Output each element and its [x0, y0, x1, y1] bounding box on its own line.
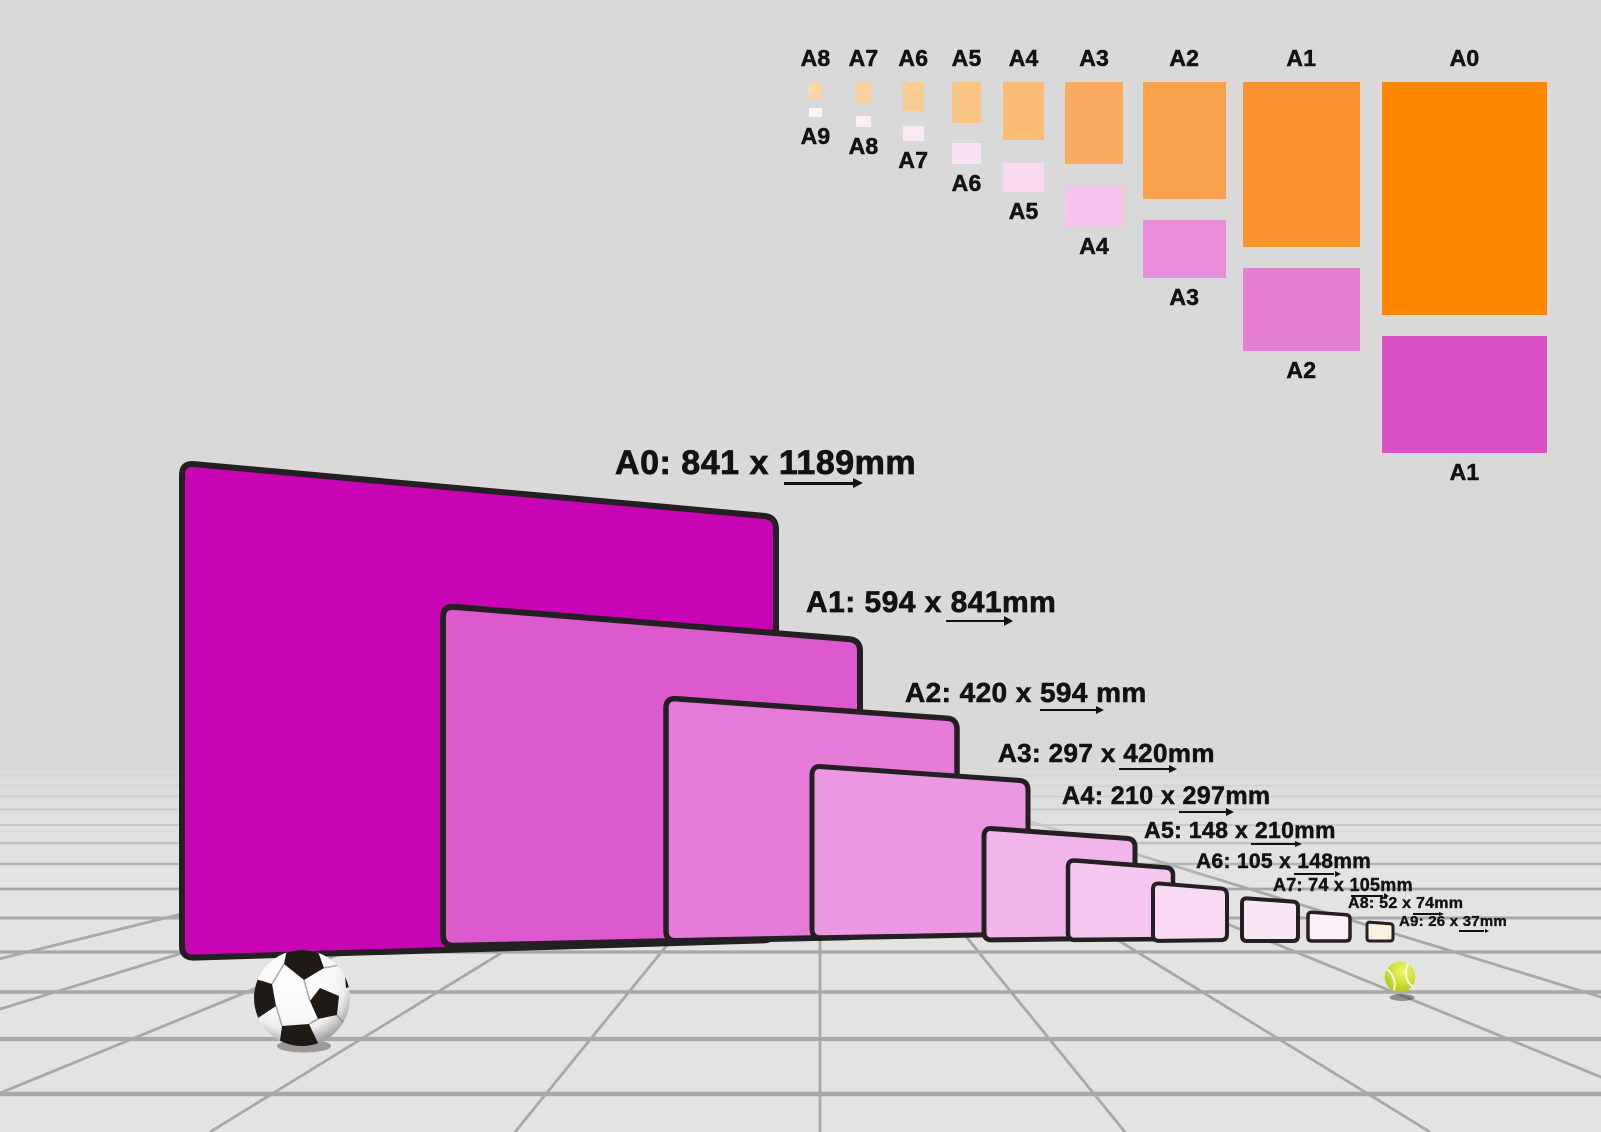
landscape-sheet-a9 — [809, 108, 822, 117]
size-label-a5: A5: 148 x 210mm — [1144, 819, 1336, 842]
portrait-sheet-a5 — [952, 82, 981, 123]
portrait-sheet-a3 — [1065, 82, 1123, 164]
right-arrow-icon — [1459, 930, 1484, 932]
portrait-sheet-a6 — [903, 82, 924, 111]
landscape-size-label: A3 — [1169, 286, 1199, 309]
portrait-size-label: A5 — [952, 47, 982, 70]
paper-sizes-infographic: A0: 841 x 1189mmA1: 594 x 841mmA2: 420 x… — [0, 0, 1601, 1132]
landscape-size-label: A1 — [1450, 461, 1480, 484]
portrait-sheet-a1 — [1243, 82, 1360, 247]
landscape-size-label: A6 — [952, 172, 982, 195]
portrait-sheet-a2 — [1143, 82, 1226, 199]
soccer-ball — [246, 944, 362, 1056]
size-label-text: A7: 74 x 105mm — [1273, 875, 1413, 895]
portrait-size-label: A7 — [849, 47, 879, 70]
size-label-a0: A0: 841 x 1189mm — [615, 446, 916, 480]
size-label-text: A9: 26 x 37mm — [1399, 913, 1507, 930]
size-label-text: A4: 210 x 297mm — [1062, 782, 1271, 810]
right-arrow-icon — [1119, 768, 1169, 770]
size-label-a8: A8: 52 x 74mm — [1348, 896, 1463, 912]
portrait-sheet-a8 — [809, 82, 822, 100]
tennis-ball-body — [1385, 962, 1416, 993]
size-label-text: A5: 148 x 210mm — [1144, 817, 1336, 843]
landscape-size-label: A7 — [898, 149, 928, 172]
size-label-text: A8: 52 x 74mm — [1348, 895, 1463, 912]
portrait-sheet-a0 — [1382, 82, 1547, 315]
right-arrow-icon — [1040, 709, 1096, 711]
landscape-sheet-a8 — [856, 116, 871, 127]
landscape-size-label: A8 — [849, 135, 879, 158]
paper-a8 — [1308, 912, 1350, 941]
landscape-size-label: A9 — [801, 125, 831, 148]
size-label-text: A3: 297 x 420mm — [998, 738, 1215, 768]
size-label-text: A2: 420 x 594 mm — [905, 677, 1147, 708]
landscape-sheet-a6 — [952, 143, 981, 164]
size-label-a2: A2: 420 x 594 mm — [905, 679, 1147, 707]
portrait-size-label: A0 — [1450, 47, 1480, 70]
size-label-text: A1: 594 x 841mm — [806, 586, 1056, 619]
portrait-size-label: A3 — [1079, 47, 1109, 70]
landscape-size-label: A4 — [1079, 235, 1109, 258]
soccer-ball-panels — [246, 944, 360, 1056]
size-label-text: A6: 105 x 148mm — [1196, 850, 1371, 873]
portrait-size-label: A2 — [1169, 47, 1199, 70]
paper-a9 — [1367, 922, 1393, 941]
paper-a7 — [1242, 898, 1298, 941]
landscape-size-label: A2 — [1286, 359, 1316, 382]
landscape-sheet-a7 — [903, 126, 924, 141]
portrait-size-label: A6 — [898, 47, 928, 70]
size-label-a3: A3: 297 x 420mm — [998, 740, 1215, 766]
landscape-sheet-a2 — [1243, 268, 1360, 351]
portrait-sheet-a4 — [1003, 82, 1044, 140]
right-arrow-icon — [946, 620, 1004, 622]
paper-a6 — [1153, 883, 1227, 940]
right-arrow-icon — [784, 482, 853, 485]
tennis-ball-shadow — [1390, 994, 1415, 1001]
portrait-sheet-a7 — [856, 82, 871, 103]
right-arrow-icon — [1179, 811, 1227, 813]
landscape-size-label: A5 — [1009, 200, 1039, 223]
landscape-sheet-a3 — [1143, 220, 1226, 278]
landscape-sheet-a4 — [1065, 186, 1123, 227]
size-label-a9: A9: 26 x 37mm — [1399, 914, 1507, 929]
portrait-size-label: A4 — [1009, 47, 1039, 70]
size-label-a7: A7: 74 x 105mm — [1273, 876, 1413, 894]
portrait-size-label: A8 — [801, 47, 831, 70]
right-arrow-icon — [1251, 843, 1295, 845]
size-label-a6: A6: 105 x 148mm — [1196, 851, 1371, 872]
landscape-sheet-a5 — [1003, 163, 1044, 192]
standing-papers — [0, 0, 1601, 1132]
size-label-text: A0: 841 x 1189mm — [615, 444, 916, 482]
size-label-a1: A1: 594 x 841mm — [806, 588, 1056, 618]
landscape-sheet-a1 — [1382, 336, 1547, 453]
size-label-a4: A4: 210 x 297mm — [1062, 784, 1271, 809]
portrait-size-label: A1 — [1286, 47, 1316, 70]
tennis-ball — [1383, 959, 1423, 1003]
